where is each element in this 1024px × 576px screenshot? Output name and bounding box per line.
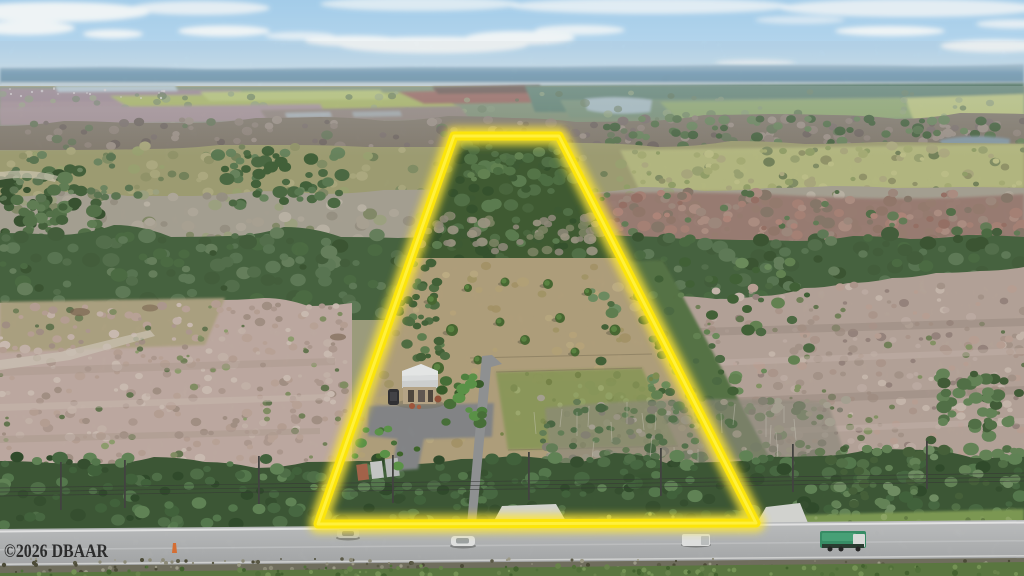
svg-text:©2026 DBAAR: ©2026 DBAAR — [4, 542, 109, 562]
